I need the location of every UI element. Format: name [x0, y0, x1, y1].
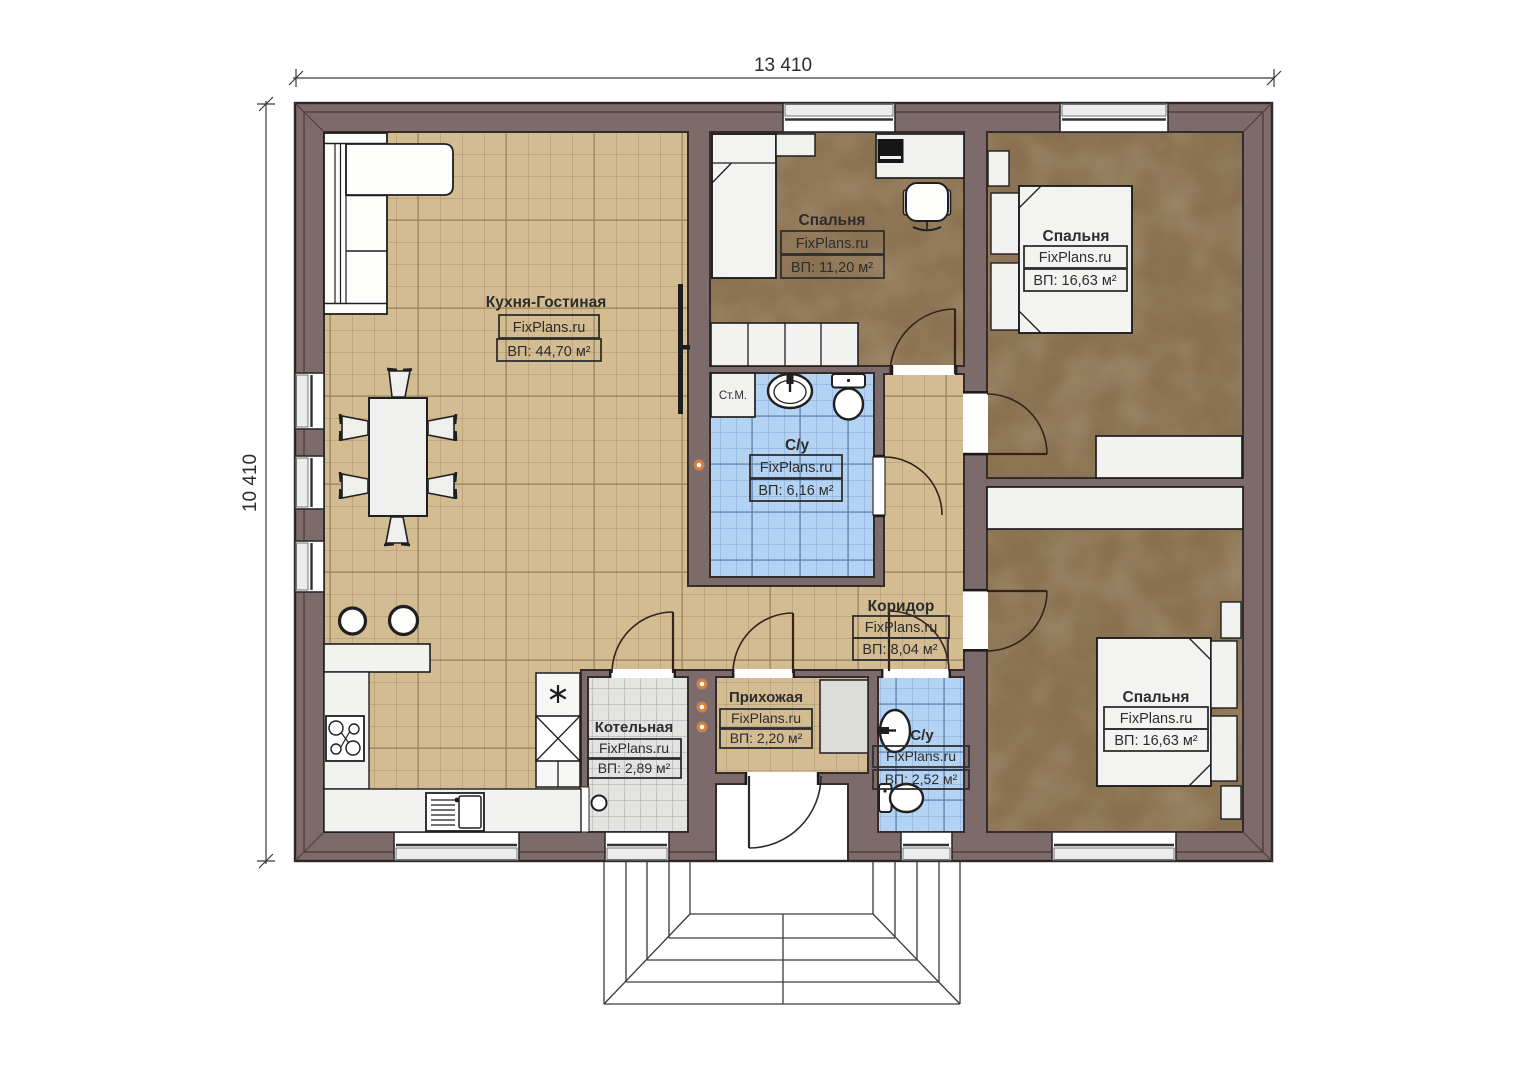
- svg-text:ВП: 44,70 м²: ВП: 44,70 м²: [507, 344, 590, 360]
- svg-text:Котельная: Котельная: [595, 719, 674, 736]
- svg-text:Коридор: Коридор: [868, 598, 935, 615]
- svg-text:FixPlans.ru: FixPlans.ru: [886, 748, 956, 764]
- svg-text:ВП: 8,04 м²: ВП: 8,04 м²: [862, 642, 937, 658]
- svg-text:ВП: 2,89 м²: ВП: 2,89 м²: [598, 760, 671, 776]
- svg-text:ВП: 6,16 м²: ВП: 6,16 м²: [758, 483, 833, 499]
- svg-text:FixPlans.ru: FixPlans.ru: [796, 236, 869, 252]
- svg-text:10 410: 10 410: [240, 454, 261, 512]
- svg-text:Спальня: Спальня: [1043, 228, 1110, 245]
- svg-text:Спальня: Спальня: [799, 212, 866, 229]
- svg-text:FixPlans.ru: FixPlans.ru: [760, 460, 833, 476]
- svg-text:С/у: С/у: [910, 727, 934, 744]
- svg-text:С/у: С/у: [785, 437, 810, 454]
- svg-text:Прихожая: Прихожая: [729, 689, 803, 706]
- svg-text:Кухня-Гостиная: Кухня-Гостиная: [486, 294, 607, 311]
- svg-text:FixPlans.ru: FixPlans.ru: [1039, 250, 1112, 266]
- svg-text:FixPlans.ru: FixPlans.ru: [865, 620, 938, 636]
- svg-text:ВП: 16,63 м²: ВП: 16,63 м²: [1033, 273, 1116, 289]
- svg-text:ВП: 2,20 м²: ВП: 2,20 м²: [730, 730, 803, 746]
- svg-text:FixPlans.ru: FixPlans.ru: [731, 710, 801, 726]
- svg-text:FixPlans.ru: FixPlans.ru: [513, 320, 586, 336]
- svg-text:FixPlans.ru: FixPlans.ru: [1120, 711, 1193, 727]
- svg-text:Спальня: Спальня: [1123, 689, 1190, 706]
- svg-text:Ст.М.: Ст.М.: [719, 390, 747, 402]
- svg-text:ВП: 11,20 м²: ВП: 11,20 м²: [791, 260, 873, 276]
- svg-text:ВП: 2,52 м²: ВП: 2,52 м²: [885, 771, 958, 787]
- svg-text:13 410: 13 410: [754, 55, 812, 76]
- svg-text:FixPlans.ru: FixPlans.ru: [599, 740, 669, 756]
- svg-text:ВП: 16,63 м²: ВП: 16,63 м²: [1114, 733, 1197, 749]
